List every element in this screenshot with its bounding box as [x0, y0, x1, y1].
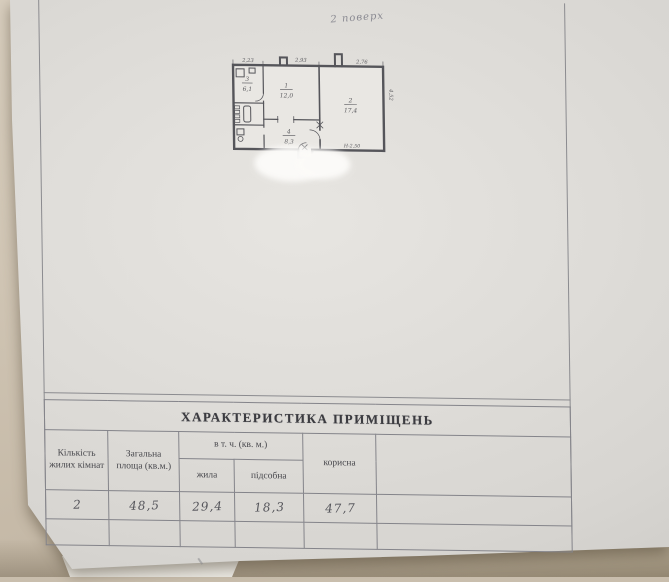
- plan-outer-walls: [233, 65, 384, 159]
- value-rooms-count-cell: 2: [46, 490, 110, 520]
- plan-top-stub-right: [335, 54, 342, 66]
- plan-height-mark: Н-2,50: [343, 143, 361, 149]
- header-extra-empty: [376, 434, 571, 497]
- empty-cell-5: [304, 522, 378, 549]
- plan-dim-right-side: 4,52: [387, 88, 393, 101]
- plan-room1-number: 1: [284, 82, 288, 89]
- value-useful: 47,7: [325, 501, 356, 516]
- header-rooms-count: Кількість жилих кімнат: [45, 430, 109, 491]
- plan-kitchen-number: 3: [245, 76, 249, 83]
- empty-cell-4: [235, 521, 304, 548]
- value-auxiliary-cell: 18,3: [235, 492, 304, 522]
- plan-room2-area: 17,4: [344, 107, 358, 114]
- header-total-area: Загальна площа (кв.м.): [108, 431, 180, 492]
- value-auxiliary: 18,3: [254, 500, 285, 515]
- value-living-cell: 29,4: [180, 492, 236, 522]
- characteristics-table: ХАРАКТЕРИСТИКА ПРИМІЩЕНЬ Кількість жилих…: [44, 399, 573, 552]
- plan-kitchen-area: 6,1: [243, 86, 253, 93]
- value-rooms-count: 2: [73, 498, 82, 512]
- value-extra-empty-cell: [377, 494, 572, 526]
- value-total-area: 48,5: [129, 498, 160, 513]
- header-useful: корисна: [302, 433, 376, 494]
- plan-hall-area: 8,3: [284, 138, 294, 145]
- header-living: жила: [179, 459, 235, 493]
- document-content: 2 поверх: [0, 0, 669, 582]
- plan-dim-top-right: 2,76: [355, 59, 368, 65]
- plan-room1-area: 12,0: [280, 92, 294, 99]
- value-living: 29,4: [192, 499, 223, 514]
- plan-hall-number: 4: [286, 129, 291, 136]
- handwritten-floor-note: 2 поверх: [330, 11, 385, 26]
- header-auxiliary: підсобна: [234, 459, 303, 493]
- empty-cell-1: [46, 519, 109, 546]
- white-correction-blob-2: [296, 149, 350, 180]
- stray-pencil-mark: [198, 558, 203, 565]
- value-total-area-cell: 48,5: [109, 491, 180, 521]
- value-useful-cell: 47,7: [303, 493, 377, 523]
- empty-cell-3: [180, 521, 236, 548]
- header-including: в т. ч. (кв. м.): [179, 432, 303, 461]
- empty-cell-2: [109, 520, 180, 547]
- plan-room2-number: 2: [348, 97, 353, 104]
- plan-dim-top-mid: 2,93: [294, 58, 307, 64]
- empty-cell-6: [377, 523, 572, 552]
- table-outer-top-line: [44, 392, 571, 400]
- plan-dim-top-left: 2,23: [241, 58, 254, 64]
